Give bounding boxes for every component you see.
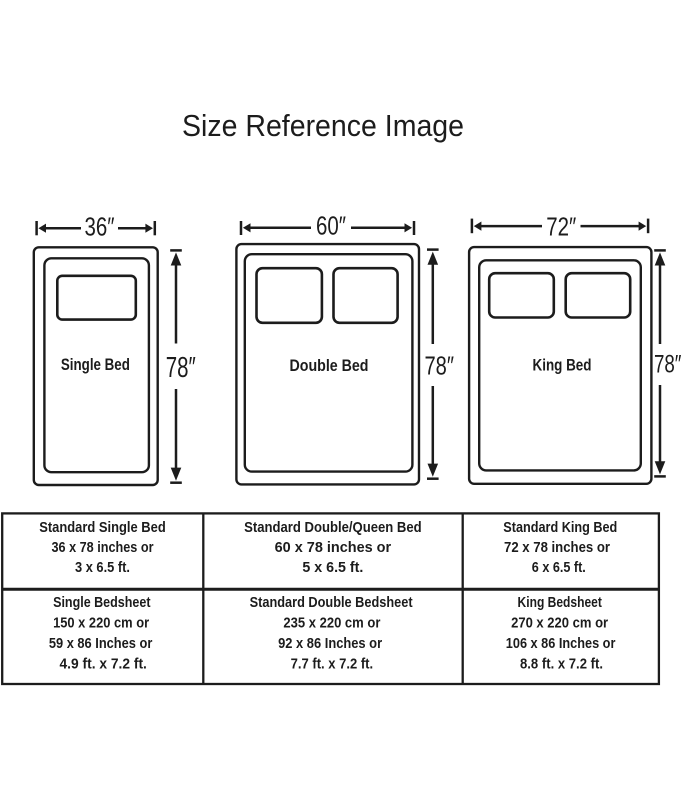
svg-text:92 x 86 Inches or: 92 x 86 Inches or (278, 635, 382, 652)
svg-text:Single Bedsheet: Single Bedsheet (53, 594, 150, 611)
svg-text:59 x 86 Inches or: 59 x 86 Inches or (49, 635, 153, 652)
svg-text:60″: 60″ (316, 210, 346, 240)
svg-text:Standard Single Bed: Standard Single Bed (39, 519, 166, 536)
svg-text:3 x 6.5 ft.: 3 x 6.5 ft. (75, 559, 130, 576)
svg-text:270 x 220 cm or: 270 x 220 cm or (511, 615, 608, 632)
svg-text:Single Bed: Single Bed (61, 355, 130, 374)
svg-text:78″: 78″ (424, 350, 454, 380)
svg-text:72″: 72″ (546, 212, 576, 242)
svg-text:Size Reference Image: Size Reference Image (182, 108, 464, 143)
svg-text:King Bed: King Bed (533, 356, 592, 375)
svg-text:Standard Double/Queen Bed: Standard Double/Queen Bed (244, 519, 422, 536)
svg-text:106 x 86 Inches or: 106 x 86 Inches or (506, 635, 616, 652)
svg-text:36 x 78 inches or: 36 x 78 inches or (52, 539, 154, 556)
svg-text:78″: 78″ (654, 351, 682, 379)
svg-text:8.8 ft. x 7.2 ft.: 8.8 ft. x 7.2 ft. (520, 655, 603, 672)
svg-text:Double Bed: Double Bed (290, 356, 369, 375)
svg-text:72 x 78 inches or: 72 x 78 inches or (504, 539, 610, 556)
svg-text:4.9 ft. x 7.2 ft.: 4.9 ft. x 7.2 ft. (60, 655, 147, 672)
svg-text:Standard King Bed: Standard King Bed (503, 519, 617, 536)
svg-text:6 x 6.5 ft.: 6 x 6.5 ft. (532, 559, 586, 576)
svg-text:36″: 36″ (85, 212, 115, 242)
svg-text:235 x 220 cm or: 235 x 220 cm or (283, 615, 380, 632)
svg-text:5 x 6.5 ft.: 5 x 6.5 ft. (302, 559, 363, 576)
svg-text:Standard Double Bedsheet: Standard Double Bedsheet (250, 594, 413, 611)
svg-text:78″: 78″ (166, 352, 196, 384)
svg-text:150 x 220 cm or: 150 x 220 cm or (53, 615, 149, 632)
svg-text:King Bedsheet: King Bedsheet (518, 594, 602, 611)
svg-text:60 x 78 inches or: 60 x 78 inches or (275, 539, 392, 556)
svg-text:7.7 ft. x 7.2 ft.: 7.7 ft. x 7.2 ft. (291, 655, 374, 672)
